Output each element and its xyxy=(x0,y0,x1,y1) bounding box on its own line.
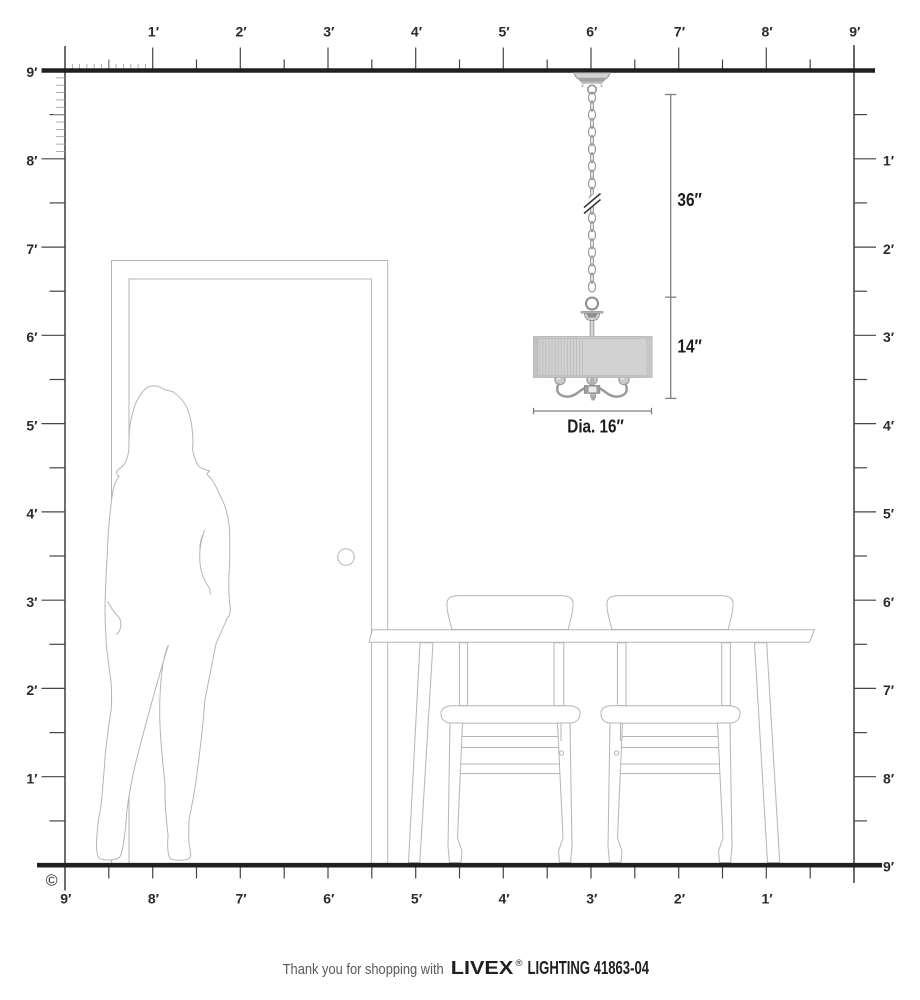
svg-text:2′: 2′ xyxy=(674,891,686,907)
svg-text:8′: 8′ xyxy=(883,770,895,786)
svg-text:6′: 6′ xyxy=(586,24,598,40)
svg-text:9′: 9′ xyxy=(60,891,72,907)
svg-text:8′: 8′ xyxy=(26,153,38,169)
svg-text:1′: 1′ xyxy=(762,891,774,907)
svg-text:©: © xyxy=(46,873,58,890)
svg-text:2′: 2′ xyxy=(26,682,38,698)
svg-text:7′: 7′ xyxy=(236,891,248,907)
svg-text:3′: 3′ xyxy=(883,329,895,345)
svg-text:9′: 9′ xyxy=(26,64,38,80)
svg-text:1′: 1′ xyxy=(883,153,895,169)
svg-text:9′: 9′ xyxy=(849,24,861,40)
svg-text:6′: 6′ xyxy=(26,329,38,345)
svg-text:14″: 14″ xyxy=(677,337,702,357)
svg-text:®: ® xyxy=(516,958,523,969)
svg-text:7′: 7′ xyxy=(26,241,38,257)
svg-text:5′: 5′ xyxy=(499,24,511,40)
svg-text:6′: 6′ xyxy=(883,594,895,610)
svg-text:3′: 3′ xyxy=(586,891,598,907)
svg-text:Thank you for shopping with: Thank you for shopping with xyxy=(283,961,444,978)
svg-text:3′: 3′ xyxy=(26,594,38,610)
svg-text:5′: 5′ xyxy=(411,891,423,907)
svg-text:1′: 1′ xyxy=(148,24,160,40)
svg-text:Dia. 16″: Dia. 16″ xyxy=(567,417,624,437)
svg-text:4′: 4′ xyxy=(883,417,895,433)
svg-text:1′: 1′ xyxy=(26,770,38,786)
svg-text:2′: 2′ xyxy=(883,241,895,257)
svg-text:LIVEX: LIVEX xyxy=(451,957,514,978)
svg-text:4′: 4′ xyxy=(411,24,423,40)
svg-text:4′: 4′ xyxy=(26,506,38,522)
svg-text:8′: 8′ xyxy=(148,891,160,907)
svg-text:2′: 2′ xyxy=(236,24,248,40)
svg-text:3′: 3′ xyxy=(323,24,335,40)
svg-text:LIGHTING 41863-04: LIGHTING 41863-04 xyxy=(528,957,650,978)
svg-text:7′: 7′ xyxy=(674,24,686,40)
svg-text:7′: 7′ xyxy=(883,682,895,698)
svg-text:5′: 5′ xyxy=(26,417,38,433)
svg-text:36″: 36″ xyxy=(677,190,702,210)
svg-text:6′: 6′ xyxy=(323,891,335,907)
svg-text:4′: 4′ xyxy=(499,891,511,907)
svg-text:5′: 5′ xyxy=(883,506,895,522)
svg-text:9′: 9′ xyxy=(883,859,895,875)
svg-text:8′: 8′ xyxy=(762,24,774,40)
